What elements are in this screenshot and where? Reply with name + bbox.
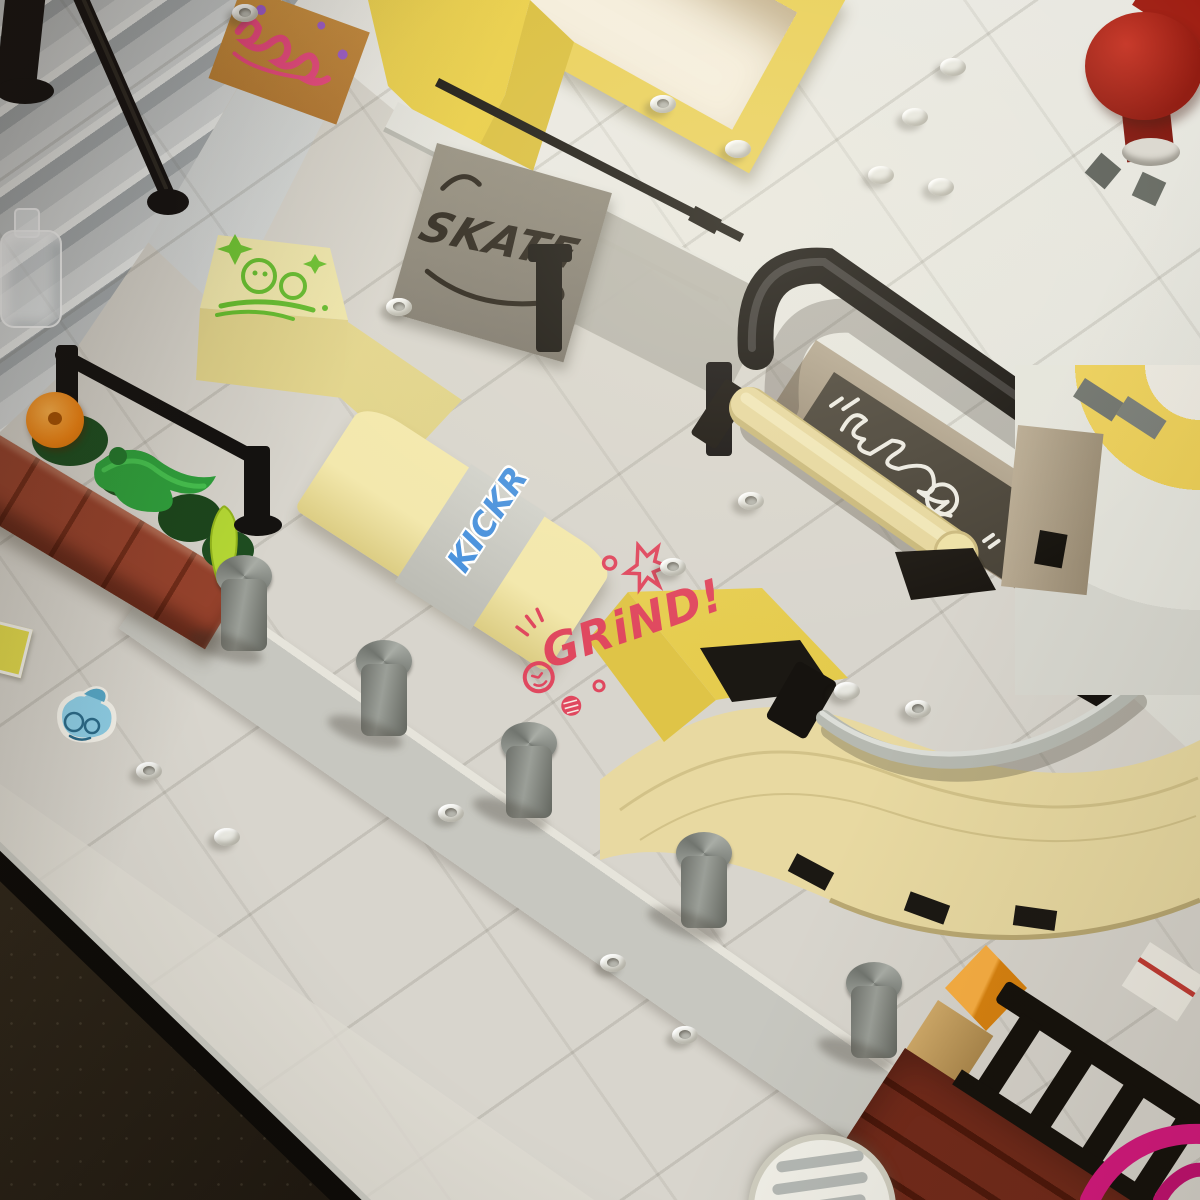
bollard [676, 832, 732, 930]
drain-slat [774, 1194, 867, 1200]
drain-slat [772, 1171, 869, 1195]
stud [232, 4, 258, 22]
clear-bottle [0, 230, 62, 328]
stud [868, 166, 894, 184]
stud [928, 178, 954, 196]
stud [386, 298, 412, 316]
kickr-graffiti: KICKR [439, 459, 536, 579]
stud [940, 58, 966, 76]
stud [672, 1026, 698, 1044]
stud [834, 682, 860, 700]
blue-character-sticker [44, 682, 124, 762]
corner-ramp-block [1001, 425, 1103, 595]
bollard [501, 722, 557, 820]
rail-support-post [536, 250, 562, 352]
bollard [846, 962, 902, 1060]
stair-handrail [40, 0, 200, 230]
drain-slat [776, 1150, 865, 1173]
stud [650, 95, 676, 113]
red-stool-base [1122, 138, 1180, 166]
stud [600, 954, 626, 972]
magenta-tube [1040, 1098, 1200, 1200]
orange-flower-center [48, 412, 62, 425]
ramp-clip [1034, 530, 1067, 568]
rail-post-foot [234, 514, 282, 536]
stud [214, 828, 240, 846]
stud [738, 492, 764, 510]
stud [725, 140, 751, 158]
stud [438, 804, 464, 822]
bollard [216, 555, 272, 653]
stud [136, 762, 162, 780]
stud [660, 558, 686, 576]
rail-support-clamp [528, 244, 572, 262]
orange-flower [26, 392, 84, 448]
stud [902, 108, 928, 126]
pole-rail [690, 360, 1030, 620]
bollard [356, 640, 412, 738]
stud [905, 700, 931, 718]
photo-lego-skatepark: SKATE KICKR [0, 0, 1200, 1200]
red-stool-top [1085, 12, 1200, 120]
